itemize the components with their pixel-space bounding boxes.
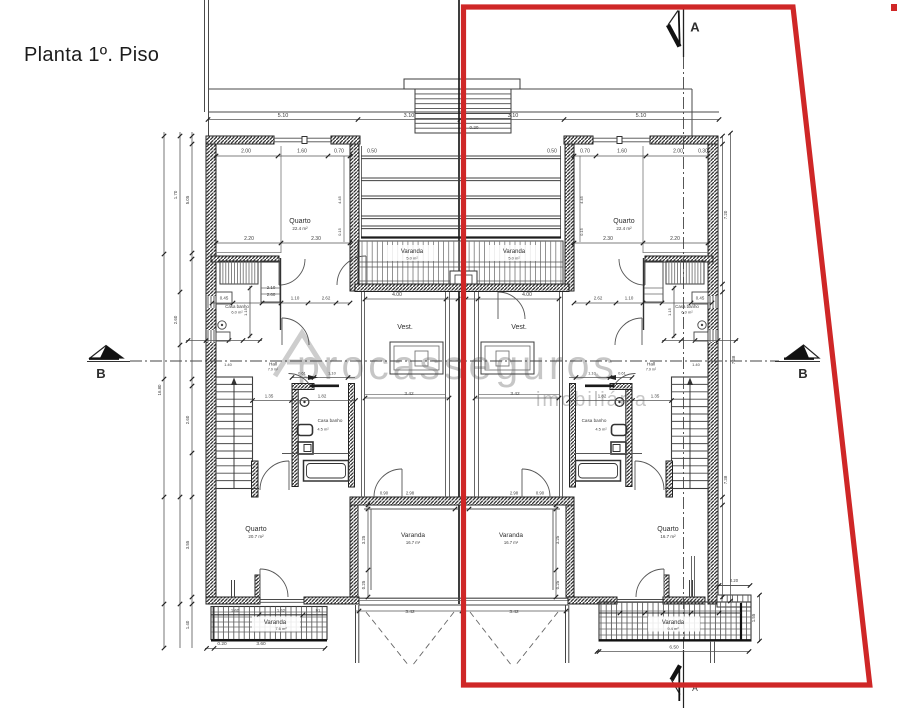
svg-text:Varanda: Varanda: [401, 249, 424, 255]
svg-text:2.10: 2.10: [267, 285, 276, 290]
svg-text:1.15: 1.15: [243, 307, 248, 316]
svg-text:2.30: 2.30: [311, 236, 321, 242]
svg-text:3.42: 3.42: [509, 609, 519, 615]
svg-text:0.15: 0.15: [337, 227, 342, 236]
svg-text:Varanda: Varanda: [499, 532, 523, 539]
svg-text:Vest.: Vest.: [511, 324, 527, 331]
svg-text:0.30: 0.30: [698, 149, 708, 155]
svg-text:0.50: 0.50: [547, 149, 557, 155]
svg-text:3.42: 3.42: [405, 609, 415, 615]
svg-text:9.4 m²: 9.4 m²: [667, 626, 679, 631]
svg-text:1.82: 1.82: [598, 394, 607, 399]
svg-text:0.50: 0.50: [367, 149, 377, 155]
svg-text:16.7 m²: 16.7 m²: [660, 534, 676, 539]
svg-text:1.15: 1.15: [667, 307, 672, 316]
svg-text:1.10: 1.10: [588, 371, 597, 376]
svg-text:4.00: 4.00: [522, 292, 532, 298]
svg-text:1.82: 1.82: [318, 394, 327, 399]
svg-text:1.55: 1.55: [751, 613, 756, 622]
svg-text:1.40: 1.40: [692, 362, 701, 367]
svg-text:Planta 1º. Piso: Planta 1º. Piso: [24, 44, 159, 66]
svg-text:7.9 m²: 7.9 m²: [268, 368, 279, 372]
svg-text:1.10: 1.10: [328, 371, 337, 376]
svg-text:1.70: 1.70: [173, 190, 178, 199]
svg-text:3.25: 3.25: [361, 535, 366, 544]
svg-text:4.45: 4.45: [337, 195, 342, 204]
svg-text:0.45: 0.45: [696, 296, 705, 301]
svg-text:1.60: 1.60: [231, 608, 240, 613]
svg-text:7.6 m²: 7.6 m²: [275, 626, 287, 631]
svg-text:4.5 m²: 4.5 m²: [317, 427, 329, 432]
svg-text:3.55: 3.55: [185, 540, 190, 549]
svg-text:Hall: Hall: [269, 362, 277, 367]
svg-text:1.35: 1.35: [265, 394, 274, 399]
svg-text:0.61: 0.61: [618, 371, 627, 376]
svg-text:2.00: 2.00: [241, 149, 251, 155]
svg-text:0.20: 0.20: [730, 578, 739, 583]
svg-text:0.61: 0.61: [298, 371, 307, 376]
svg-text:2.20: 2.20: [244, 236, 254, 242]
svg-text:Quarto: Quarto: [245, 526, 267, 533]
svg-text:6.50: 6.50: [669, 645, 679, 651]
svg-text:7.38: 7.38: [723, 475, 728, 484]
svg-text:16.80: 16.80: [157, 384, 162, 396]
svg-text:Hall: Hall: [647, 362, 655, 367]
svg-text:A: A: [690, 20, 700, 35]
svg-text:Vest.: Vest.: [397, 324, 413, 331]
svg-text:4.45: 4.45: [579, 195, 584, 204]
svg-text:6.0 m²: 6.0 m²: [231, 310, 243, 315]
svg-text:1.10: 1.10: [291, 296, 300, 301]
svg-text:2.62: 2.62: [594, 296, 603, 301]
svg-text:20.7 m²: 20.7 m²: [248, 534, 264, 539]
svg-text:7.9 m²: 7.9 m²: [646, 368, 657, 372]
svg-text:1.60: 1.60: [297, 149, 307, 155]
svg-text:0.70: 0.70: [334, 149, 344, 155]
svg-text:5.05: 5.05: [185, 195, 190, 204]
svg-text:1.35: 1.35: [651, 394, 660, 399]
svg-text:2.60: 2.60: [173, 315, 178, 324]
svg-text:Quarto: Quarto: [613, 218, 635, 225]
svg-text:16.7 m²: 16.7 m²: [504, 540, 519, 545]
svg-text:0.25: 0.25: [361, 580, 366, 589]
svg-text:Casa banho: Casa banho: [675, 304, 699, 309]
svg-text:B: B: [798, 366, 807, 381]
svg-text:1.40: 1.40: [224, 362, 233, 367]
svg-text:Quarto: Quarto: [289, 218, 311, 225]
svg-text:1.40: 1.40: [185, 620, 190, 629]
svg-text:2.60: 2.60: [185, 415, 190, 424]
svg-text:2.98: 2.98: [510, 491, 519, 496]
svg-text:0.90: 0.90: [536, 491, 545, 496]
svg-text:Varanda: Varanda: [503, 249, 526, 255]
svg-text:2.20: 2.20: [670, 236, 680, 242]
svg-text:3.60: 3.60: [256, 641, 266, 647]
svg-text:4.5 m²: 4.5 m²: [595, 427, 607, 432]
svg-text:3.42: 3.42: [404, 391, 414, 397]
svg-text:5.0 m²: 5.0 m²: [406, 256, 418, 261]
svg-text:Casa banho: Casa banho: [582, 418, 607, 423]
svg-text:0.20: 0.20: [470, 125, 479, 130]
svg-text:Quarto: Quarto: [657, 526, 679, 533]
svg-text:22.4 m²: 22.4 m²: [292, 226, 308, 231]
svg-text:7.38: 7.38: [731, 355, 736, 364]
svg-text:0.70: 0.70: [580, 149, 590, 155]
svg-text:2.62: 2.62: [322, 296, 331, 301]
svg-text:procasseguros: procasseguros: [297, 342, 618, 388]
svg-text:1.60: 1.60: [617, 149, 627, 155]
svg-text:3.10: 3.10: [404, 113, 415, 119]
svg-text:5.0 m²: 5.0 m²: [508, 256, 520, 261]
svg-text:3.42: 3.42: [510, 391, 520, 397]
svg-text:Varanda: Varanda: [401, 532, 425, 539]
svg-text:2.00: 2.00: [673, 149, 683, 155]
svg-text:5.10: 5.10: [636, 113, 647, 119]
svg-text:1.62: 1.62: [277, 608, 286, 613]
svg-text:22.4 m²: 22.4 m²: [616, 226, 632, 231]
svg-text:Casa banho: Casa banho: [318, 418, 343, 423]
svg-text:0.45: 0.45: [220, 296, 229, 301]
svg-text:2.30: 2.30: [603, 236, 613, 242]
svg-text:2.98: 2.98: [406, 491, 415, 496]
svg-text:5.10: 5.10: [278, 113, 289, 119]
svg-text:1.10: 1.10: [625, 296, 634, 301]
svg-text:B: B: [96, 366, 105, 381]
svg-text:91: 91: [316, 608, 321, 613]
svg-text:2.60: 2.60: [267, 292, 276, 297]
svg-text:4.00: 4.00: [392, 292, 402, 298]
svg-text:0.90: 0.90: [380, 491, 389, 496]
svg-text:7.20: 7.20: [723, 210, 728, 219]
svg-text:0.15: 0.15: [579, 227, 584, 236]
svg-text:16.7 m²: 16.7 m²: [406, 540, 421, 545]
svg-text:0.20: 0.20: [217, 641, 227, 647]
